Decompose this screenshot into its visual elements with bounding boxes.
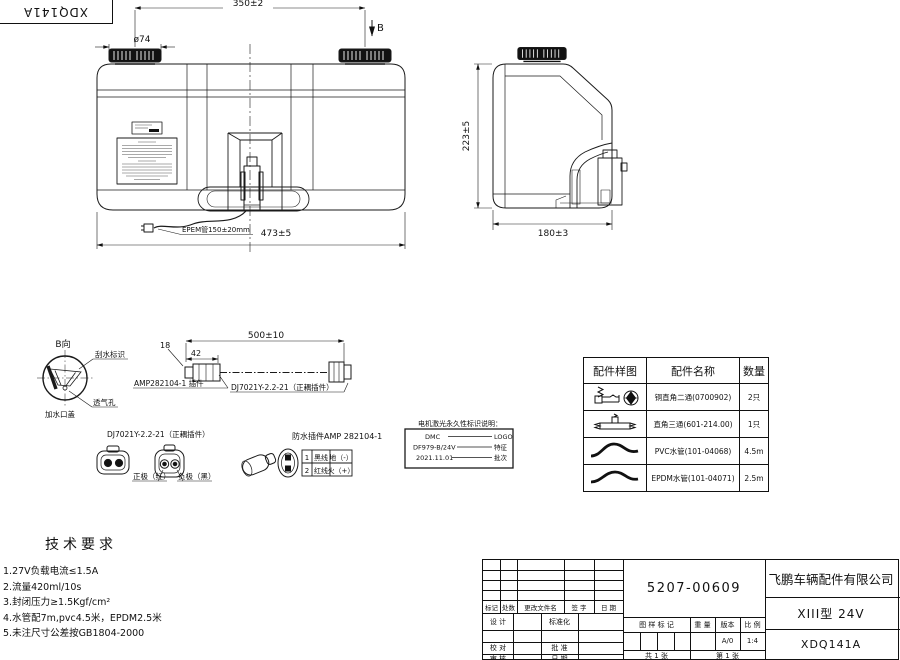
laser-row-2-value: DF979-B/24V <box>413 444 456 452</box>
sheet-total: 共 1 张 <box>623 650 690 660</box>
laser-marking-title: 电机激光永久性标识说明： <box>418 419 502 428</box>
negative-label: 负极（黑） <box>178 471 216 481</box>
laser-row-1-value: DMC <box>425 433 441 441</box>
pin-2: 2 <box>305 467 309 475</box>
tank-side-view <box>493 47 627 208</box>
part-name: 铜直角二通(0700902) <box>647 384 740 411</box>
dim-height: 223±5 <box>462 121 472 151</box>
pin-1-role: 地（-） <box>329 453 353 462</box>
design-label: 设 计 <box>483 613 513 630</box>
parts-table: 配件样图 配件名称 数量 <box>583 357 769 492</box>
hose-length-label: EPEM管150±20mm <box>182 225 250 234</box>
title-block: 飞鹏车辆配件有限公司 XIII型 24V XDQ141A 5207-00609 … <box>482 559 899 660</box>
parts-header-qty: 数量 <box>740 358 769 384</box>
cable-assembly <box>185 362 351 382</box>
positive-label: 正极（红） <box>133 471 171 481</box>
weight-label: 重 量 <box>690 617 715 632</box>
tank-label-large <box>117 138 177 184</box>
laser-row-1-label: LOGO <box>494 433 513 441</box>
model-name: XIII型 24V <box>765 597 897 629</box>
laser-row-3-label: 批次 <box>494 453 508 462</box>
pin-2-role: 火（+） <box>328 467 355 475</box>
tank-front-view <box>97 44 405 252</box>
hose-fitting <box>141 224 153 232</box>
parts-header-sample: 配件样图 <box>584 358 647 384</box>
check-label: 校 对 <box>483 642 513 654</box>
rev-file-label: 更改文件名 <box>517 600 564 613</box>
washer-pump-front <box>241 157 263 211</box>
part-qty: 2.5m <box>740 465 769 492</box>
parts-row: PVC水管(101-04068) 4.5m <box>584 438 769 465</box>
part-qty: 4.5m <box>740 438 769 465</box>
dim-cable-connector: 18 <box>160 341 170 350</box>
scale-label: 比 例 <box>740 617 765 632</box>
part-number: 5207-00609 <box>623 560 765 617</box>
standardize-label: 标准化 <box>541 613 578 630</box>
tech-requirement-item: 3.封闭压力≥1.5Kgf/cm² <box>3 595 253 611</box>
washer-pump-side <box>556 143 627 208</box>
corner-stamp: XDQ141A <box>0 0 113 24</box>
corner-stamp-text: XDQ141A <box>23 5 88 19</box>
laser-row-3-value: 2021.11.01 <box>416 454 453 462</box>
approve-label: 批 准 <box>541 642 578 654</box>
vent-hole-label: 透气孔 <box>93 397 116 407</box>
scale-value: 1:4 <box>740 632 765 650</box>
waterproof-plug-3d-icon <box>240 450 278 478</box>
wiper-mark-icon <box>48 366 81 390</box>
filler-cap-side <box>518 47 566 61</box>
cable-left-connector-label: AMP282104-1 插件 <box>134 378 204 388</box>
plug-detail-title: DJ7021Y-2.2-21（正耦插件） <box>107 429 210 439</box>
dim-cap-spacing: 350±2 <box>233 0 263 9</box>
drawing-sheet: 350±2 ø74 B EPEM管150±20mm 473±5 223±5 <box>0 0 900 660</box>
rev-count-label: 处数 <box>500 600 517 613</box>
tech-requirements-title: 技术要求 <box>45 534 253 554</box>
part-qty: 2只 <box>740 384 769 411</box>
part-name: 直角三通(601-214.00) <box>647 411 740 438</box>
rev-date-label: 日 期 <box>594 600 623 613</box>
version-label: 版本 <box>715 617 740 632</box>
section-marker-b: B <box>377 23 384 34</box>
pin-1: 1 <box>305 454 309 462</box>
waterproof-plug-title: 防水插件AMP 282104-1 <box>292 431 382 441</box>
review-label: 审 核 <box>483 654 513 660</box>
parts-header-name: 配件名称 <box>647 358 740 384</box>
pin-1-wire: 黑线 <box>314 453 328 462</box>
tech-requirement-item: 4.水管配7m,pvc4.5米，EPDM2.5米 <box>3 611 253 627</box>
tech-requirement-item: 5.未注尺寸公差按GB1804-2000 <box>3 626 253 642</box>
rev-sign-label: 签 字 <box>564 600 594 613</box>
parts-header-row: 配件样图 配件名称 数量 <box>584 358 769 384</box>
plug-3d-icon <box>97 446 129 474</box>
side-view-dimensions <box>474 64 612 230</box>
filler-cap-right <box>339 49 391 64</box>
rev-mark-label: 标记 <box>483 600 500 613</box>
parts-row: EPDM水管(101-04071) 2.5m <box>584 465 769 492</box>
part-name: EPDM水管(101-04071) <box>647 465 740 492</box>
dim-cable-length: 500±10 <box>248 331 284 341</box>
filler-cap-left <box>109 49 161 64</box>
parts-row: 铜直角二通(0700902) 2只 <box>584 384 769 411</box>
version-value: A/0 <box>715 632 740 650</box>
pin-2-wire: 红线 <box>314 466 328 475</box>
dim-overall-width: 473±5 <box>261 229 291 239</box>
stamp-label: 图 样 标 记 <box>623 617 690 632</box>
date-label: 日 期 <box>541 654 578 660</box>
pvc-hose-icon <box>586 438 644 462</box>
drawing-number: XDQ141A <box>765 629 897 659</box>
dim-cap-diameter: ø74 <box>134 35 151 45</box>
filler-cap-label: 加水口盖 <box>45 409 75 419</box>
pump-niche <box>198 133 309 211</box>
tank-label-small <box>132 122 162 134</box>
company-name: 飞鹏车辆配件有限公司 <box>765 560 897 597</box>
waterproof-plug-face-icon <box>278 449 298 477</box>
cable-right-connector-label: DJ7021Y-2.2-21（正耦插件） <box>231 382 334 392</box>
tech-requirement-item: 2.流量420ml/10s <box>3 580 253 596</box>
dim-depth: 180±3 <box>538 229 568 239</box>
part-name: PVC水管(101-04068) <box>647 438 740 465</box>
part-qty: 1只 <box>740 411 769 438</box>
parts-row: 直角三通(601-214.00) 1只 <box>584 411 769 438</box>
tee-fitting-icon <box>586 411 644 435</box>
tech-requirement-item: 1.27V负载电流≤1.5A <box>3 564 253 580</box>
wiper-mark-label: 刮水标识 <box>95 349 125 359</box>
epdm-hose-icon <box>586 465 644 489</box>
laser-row-2-label: 特征 <box>494 443 508 452</box>
dim-cable-lead: 42 <box>191 349 201 358</box>
elbow-fitting-icon <box>586 384 644 408</box>
sheet-number: 第 1 张 <box>690 650 765 660</box>
view-b-title: B向 <box>55 338 70 350</box>
tech-requirements: 技术要求 1.27V负载电流≤1.5A 2.流量420ml/10s 3.封闭压力… <box>3 534 253 642</box>
